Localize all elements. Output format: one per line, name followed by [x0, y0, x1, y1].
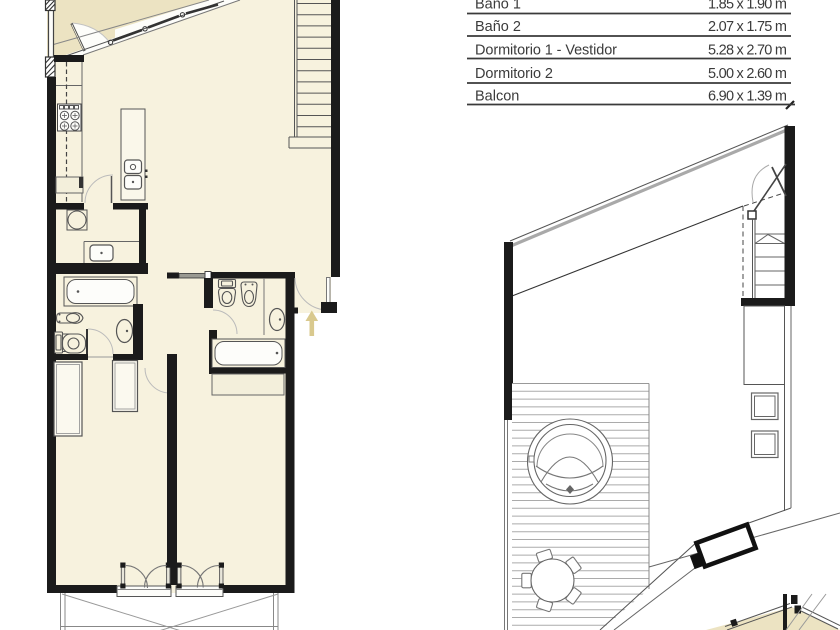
svg-text:2.07 x 1.75 m: 2.07 x 1.75 m [708, 19, 787, 35]
svg-text:Baño 1: Baño 1 [475, 0, 521, 13]
svg-text:5.28 x 2.70 m: 5.28 x 2.70 m [708, 43, 787, 59]
svg-text:Balcon: Balcon [475, 89, 519, 105]
svg-text:Dormitorio 2: Dormitorio 2 [475, 66, 553, 82]
svg-text:Dormitorio 1 - Vestidor: Dormitorio 1 - Vestidor [475, 43, 617, 59]
svg-text:5.00 x 2.60 m: 5.00 x 2.60 m [708, 66, 787, 82]
svg-text:6.90 x 1.39 m: 6.90 x 1.39 m [708, 89, 787, 105]
svg-text:1.85 x 1.90 m: 1.85 x 1.90 m [708, 0, 787, 13]
svg-text:Baño 2: Baño 2 [475, 19, 521, 35]
